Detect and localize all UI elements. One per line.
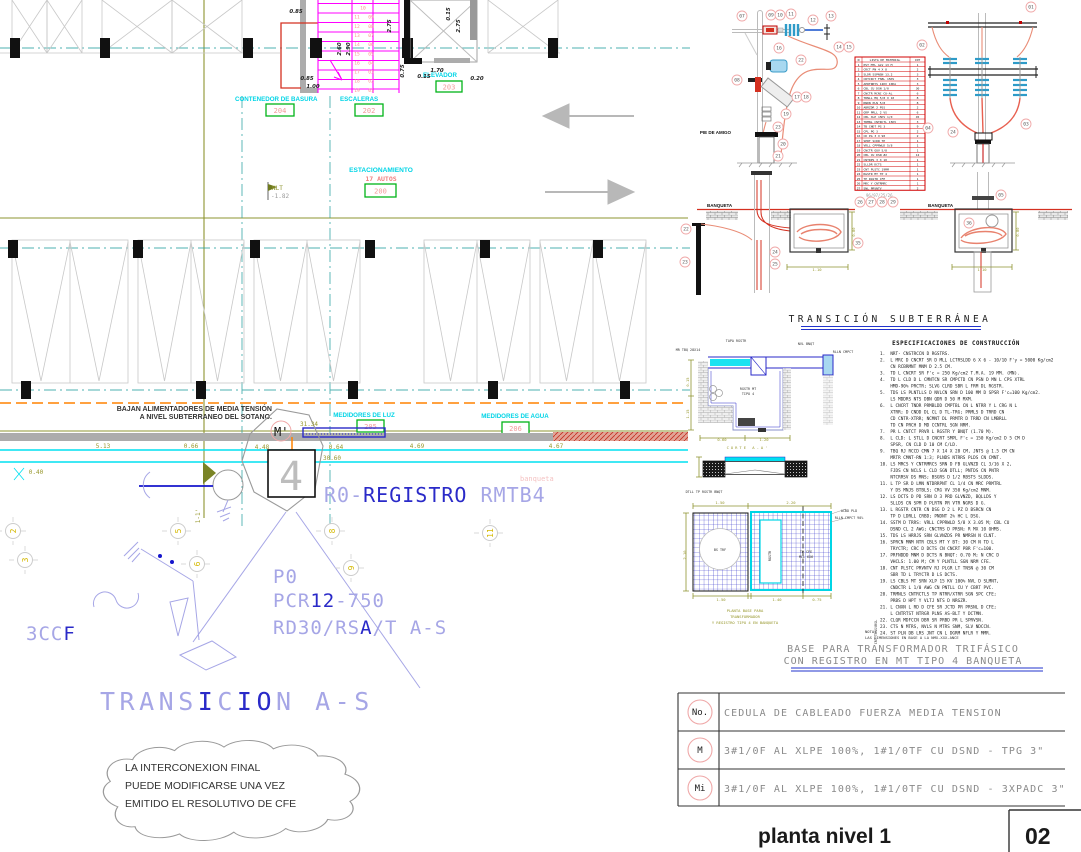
material-row-no: 26 xyxy=(857,182,861,186)
contenedor-label: CONTENEDOR DE BASURA xyxy=(235,96,318,103)
medidores-agua-label: MEDIDORES DE AGUA xyxy=(481,413,549,420)
wall-band-hatched xyxy=(553,432,688,441)
stall-line xyxy=(334,242,361,381)
escaleras-label: ESCALERAS xyxy=(340,96,378,103)
dim-label: 1.00 xyxy=(306,84,320,90)
stair-number: 16 xyxy=(354,60,360,66)
material-row-no: 13 xyxy=(857,120,861,124)
callout-number: 13 xyxy=(828,14,834,20)
material-row-desc: TRNLL MQ 5/8 X 10 xyxy=(864,96,895,100)
bajan-line1: BAJAN ALIMENTADORES DE MEDIA TENSIÓN xyxy=(117,404,272,413)
stall-line xyxy=(70,242,99,381)
callout-number: 04 xyxy=(925,126,931,132)
stall-line xyxy=(138,242,165,381)
riser-conduit-cables xyxy=(757,180,790,290)
callout-number: 35 xyxy=(855,241,861,247)
micro-annotation: 2.10 xyxy=(682,550,687,560)
cable-coil xyxy=(797,225,841,242)
base-caption-1: PLANTA BASE PARA xyxy=(727,608,764,613)
wall xyxy=(404,58,422,64)
callout-number: 22 xyxy=(798,58,804,64)
stair-number: 11 xyxy=(354,15,360,21)
nlt-level: -1.82 xyxy=(271,193,289,200)
table-key-mi: Mi xyxy=(695,784,706,794)
material-row-desc: ABRZDR 2 PSS xyxy=(864,106,886,110)
dim-bracket xyxy=(14,468,24,480)
dim-label: 0.75 xyxy=(400,64,406,78)
spec-line: 2. L MRC D CNCRT SR D MLL LCTRSLDD 6 X 6… xyxy=(880,358,1054,364)
stair-step-numbers: 10110912081307140615051604170318021901 xyxy=(354,6,374,94)
ccf-text: 3CCF xyxy=(26,623,76,645)
spec-line: SPSR, CN CLD D 10 CM C/LD. xyxy=(880,442,958,448)
material-row-no: 24 xyxy=(857,172,861,176)
spec-line: 18. CNT PLSTC PRVNTV RJ PLGR LT TNSN @ 3… xyxy=(880,566,994,572)
callout-number: 02 xyxy=(919,43,925,49)
parking-band-middle xyxy=(8,240,646,399)
dim-label: 4.48 xyxy=(255,444,270,451)
callout-number: 12 xyxy=(810,18,816,24)
material-row-no: 4 xyxy=(858,77,860,81)
material-row-no: 3 xyxy=(858,72,860,76)
column xyxy=(196,381,206,399)
material-row-qty: 1 xyxy=(917,63,919,67)
stair-number: 02 xyxy=(368,79,374,85)
dim-label: 5.13 xyxy=(96,443,111,450)
registro-corte-detail: CORTE A-A' xyxy=(688,355,833,477)
tag-202: 202 xyxy=(363,107,376,115)
material-row-qty: 3 xyxy=(917,77,919,81)
sidewalk-hatch xyxy=(771,211,791,220)
nota-line2: LAS DIMENSIONES EN BASE A LA NMX-XXX-ANC… xyxy=(865,635,959,640)
stall-line xyxy=(477,242,504,381)
spec-line: 11. L TP SR D LMN NTDRRPNT CL 1/4 CN MRC… xyxy=(880,481,1002,487)
spec-line: 8. L CLD: L STLL D CNCRT SMPL F'c = 150 … xyxy=(880,436,1025,442)
stall-line xyxy=(620,242,647,381)
spec-line: L CNTRTST NTRGR PLNS AS-BLT Y DCTMN. xyxy=(880,611,983,617)
stair-number: 18 xyxy=(354,79,360,85)
table-row-mi: 3#1/0F AL XLPE 100%, 1#1/0TF CU DSND - 3… xyxy=(724,784,1066,795)
column xyxy=(10,38,20,58)
callout-number: 17 xyxy=(794,95,800,101)
callout-number: 22 xyxy=(683,227,689,233)
callout-number: 26 xyxy=(857,200,863,206)
stair-number: 03 xyxy=(368,70,374,76)
spec-line: CN RCBRMNT MNM D 2.5 CM. xyxy=(880,364,952,370)
nlt-label: NLT xyxy=(272,185,283,192)
callout-number: 07 xyxy=(739,14,745,20)
material-row-no: 6 xyxy=(858,87,860,91)
mat-header-qty: CNT xyxy=(915,58,921,62)
stair-number: 13 xyxy=(354,33,360,39)
column xyxy=(21,381,31,399)
micro-annotation: TIPO 4 xyxy=(742,392,754,396)
specifications-notes: ESPECIFICACIONES DE CONSTRUCCIÓN 1. NRT-… xyxy=(880,340,1054,637)
spec-line: 15. TDS LS HRRJS SRN GLVNZDS PR NMRSN N … xyxy=(880,533,996,539)
material-row-desc: CBL XLP 15KV 1/0 xyxy=(864,115,893,119)
material-row-qty: 2 xyxy=(917,134,919,138)
spec-line: VHCLS: 1.00 M; CM Y PLNTLL SGN NRM CFE. xyxy=(880,559,991,565)
wall xyxy=(434,58,470,63)
material-row-qty: 6 xyxy=(917,91,919,95)
dim-label: 2.90 xyxy=(346,42,352,56)
material-row-qty: 2 xyxy=(917,186,919,190)
callout-number: 11 xyxy=(788,12,794,18)
material-row-desc: RNDN PLN 5/8 xyxy=(864,101,886,105)
spec-line: NTCRRSV DS MNS; BSGRS D 1/2 RBSTS SLDDS. xyxy=(880,475,994,481)
column xyxy=(365,240,375,258)
callout-number: 08 xyxy=(734,78,740,84)
tag-200: 200 xyxy=(374,188,387,196)
floor-plan: 10110912081307140615051604170318021901 C… xyxy=(0,0,690,841)
material-row-desc: CNCTR GUV 5/8 xyxy=(864,148,888,152)
material-row-qty: 12 xyxy=(916,153,920,157)
material-row-no: 2 xyxy=(858,68,860,72)
material-row-no: 14 xyxy=(857,125,861,129)
material-row-no: 22 xyxy=(857,163,861,167)
cloud-line3: EMITIDO EL RESOLUTIVO DE CFE xyxy=(125,798,296,810)
column xyxy=(348,381,358,399)
wall xyxy=(404,0,410,64)
mat-header-no: N xyxy=(858,58,860,62)
cloud-line2: PUEDE MODIFICARSE UNA VEZ xyxy=(125,780,285,792)
spec-line: 3. TD L CNCRT SR F'c = 250 Kg/cm2 T.M.A.… xyxy=(880,371,1020,377)
table-row-m: 3#1/0F AL XLPE 100%, 1#1/0TF CU DSND - T… xyxy=(724,746,1044,757)
stair-number: 14 xyxy=(354,42,360,48)
micro-annotation: 1.50 xyxy=(716,597,726,602)
marker-m-label: M' xyxy=(274,425,288,439)
tag-203: 203 xyxy=(443,84,456,92)
pcr-text: PCR12-750 xyxy=(273,590,385,612)
pole-base xyxy=(759,137,774,163)
spec-line: 17. PRFNDDD MNM D DCTS N BNQT: 0.70 M; N… xyxy=(880,553,999,559)
stall-line xyxy=(218,242,245,381)
material-row-no: 1 xyxy=(858,63,860,67)
stall-line xyxy=(424,242,451,381)
material-row-no: 5 xyxy=(858,82,860,86)
stair-number: 06 xyxy=(368,42,374,48)
column xyxy=(548,38,558,58)
micro-annotation: 0.80 xyxy=(851,227,856,237)
dim-label: 0.20 xyxy=(470,76,484,82)
callout-number: 10 xyxy=(777,13,783,19)
rd30-text: RD30/RSA/T A-S xyxy=(273,617,447,639)
material-row-desc: CNTRPS 3 X 10 xyxy=(864,158,888,162)
stall-line xyxy=(504,242,531,381)
dim-label: 4.69 xyxy=(410,443,425,450)
material-row-no: 16 xyxy=(857,134,861,138)
material-row-qty: 3 xyxy=(917,120,919,124)
tapa-strip xyxy=(710,359,750,366)
stall-line xyxy=(593,242,620,381)
spec-line: 6. L CNCRT TNDR PRMBLDD CMPTBL CN L NTRR… xyxy=(880,403,1018,409)
dim-label: 4.67 xyxy=(549,443,564,450)
level-marker: NLT -1.82 xyxy=(268,182,289,200)
micro-annotation: RGSTR xyxy=(768,550,772,561)
nota-line1: NOTA: xyxy=(865,629,876,634)
spec-line: SBR TD L TRYCTR D LS DCTS. xyxy=(880,572,958,578)
ground-rod xyxy=(696,226,701,295)
centerlines xyxy=(0,48,690,528)
material-row-desc: CRTCRCT FSBL 15KV xyxy=(864,77,895,81)
material-row-no: 9 xyxy=(858,101,860,105)
feeder-note: BAJAN ALIMENTADORES DE MEDIA TENSIÓN A N… xyxy=(117,404,272,421)
grid-bubble-number: 9 xyxy=(347,565,356,570)
dim-label: 0.85 xyxy=(289,9,303,15)
micro-annotation: MLL 6X6 xyxy=(799,555,813,559)
stall-line xyxy=(165,242,192,381)
title-block: planta nivel 1 02 xyxy=(758,810,1081,852)
arrow-right-icon xyxy=(608,180,634,204)
manhole-circle xyxy=(213,470,243,500)
callout-number: 05 xyxy=(998,193,1004,199)
dim-label: 0.15 xyxy=(417,74,431,80)
stall-line xyxy=(12,242,41,381)
dim-label: 30.60 xyxy=(323,455,341,462)
cable-schedule-table: No. M Mi CEDULA DE CABLEADO FUERZA MEDIA… xyxy=(678,693,1066,806)
dim-label: 0.15 xyxy=(446,7,452,21)
material-row-no: 27 xyxy=(857,186,861,190)
material-row-qty: 1 xyxy=(917,167,919,171)
spec-line: 12. LS DCTS D PD SRN D 3 PRD GLVNZD, BQL… xyxy=(880,494,997,500)
material-row-desc: CPL PG 3 xyxy=(864,129,879,133)
micro-annotation: 1.15 xyxy=(685,409,690,418)
material-row-no: 15 xyxy=(857,129,861,133)
material-row-qty: 1 xyxy=(917,177,919,181)
spec-line: CNDCTR L 1/0 AWG CN PNTLL CU Y CBRT PVC. xyxy=(880,585,994,591)
material-row-no: 12 xyxy=(857,115,861,119)
material-row-qty: 2 xyxy=(917,129,919,133)
fuse-tube xyxy=(755,77,761,92)
transformer-registry: 4 1-1' xyxy=(139,409,323,523)
spec-line: 19. LS CBLS MT SRN XLP 15 KV 100% NVL D … xyxy=(880,579,999,585)
callout-number: 09 xyxy=(768,13,774,19)
sheet-number: 02 xyxy=(1025,823,1051,849)
stall-line xyxy=(254,242,281,381)
material-row-qty: 1 xyxy=(917,139,919,143)
material-row-desc: SLLDR DCTS xyxy=(864,163,882,167)
cad-sheet: 10110912081307140615051604170318021901 C… xyxy=(0,0,1081,852)
stair-number: 04 xyxy=(368,60,374,66)
spec-line: Y DS MNJS BTBLS; CRG VV 350 Kg/cm2 MNM. xyxy=(880,488,991,494)
callout-number: 20 xyxy=(780,142,786,148)
material-row-desc: SNL PRVNTV xyxy=(864,186,882,190)
material-row-no: 17 xyxy=(857,139,861,143)
callout-number: 27 xyxy=(868,200,874,206)
callout-number: 25 xyxy=(772,262,778,268)
material-row-no: 19 xyxy=(857,148,861,152)
material-row-desc: GRP PRLL 2 VS xyxy=(864,110,888,114)
sidewalk-hatch xyxy=(706,211,738,220)
material-row-desc: CBL CU DSN #2 xyxy=(864,153,888,157)
table-row-header: CEDULA DE CABLEADO FUERZA MEDIA TENSION xyxy=(724,708,1002,719)
grid-bubble-number: 8 xyxy=(328,528,337,533)
callout-number: 16 xyxy=(776,46,782,52)
spec-line: 9. TBQ RJ RCCD CMN 7 X 14 X 28 CM, JNTS … xyxy=(880,449,1015,455)
material-row-qty: 1 xyxy=(917,148,919,152)
material-row-desc: MRC Y CNTRMRC xyxy=(864,182,888,186)
tapa-detail-strip xyxy=(725,457,785,462)
callout-number: 23 xyxy=(775,125,781,131)
transicion-subterranea-title: TRANSICIÓN SUBTERRÁNEA xyxy=(789,313,992,325)
callout-number: 01 xyxy=(1028,5,1034,11)
detail-drawings: PIE DE AMIGO N LISTA DE MATERIAL CNT 1PS… xyxy=(676,2,1072,671)
p0-text: P0 xyxy=(273,566,298,588)
dim-label: 0.40 xyxy=(29,469,44,476)
room-labels: CONTENEDOR DE BASURA 204 ESCALERAS 202 E… xyxy=(235,72,549,434)
medidores-luz-label: MEDIDORES DE LUZ xyxy=(333,412,395,419)
spec-line: CD CNTR-XTRR; NCMNT DL PRMTR D TRRD CN L… xyxy=(880,416,1007,422)
transicion-title: TRANSICION A-S xyxy=(100,687,374,716)
dim-label: 2.75 xyxy=(456,19,462,33)
revision-cloud: LA INTERCONEXION FINAL PUEDE MODIFICARSE… xyxy=(103,740,359,840)
micro-annotation: 1.40 xyxy=(772,597,782,602)
grid-bubble-number: 5 xyxy=(174,528,183,533)
stall-line xyxy=(451,242,478,381)
micro-annotation: 1.20 xyxy=(759,437,769,442)
grid-bubble-number: 2 xyxy=(9,528,18,533)
grid-bubbles: 23568911 xyxy=(0,517,506,582)
callout-number: 19 xyxy=(783,112,789,118)
grid-bubble-number: 6 xyxy=(193,561,202,566)
column xyxy=(593,240,603,258)
material-row-desc: CNCTR MCNC CU-AL xyxy=(864,91,893,95)
micro-annotation: NVL BNQT xyxy=(798,342,814,346)
spec-line: 1. NRT- CNSTRCCN D RGSTRS. xyxy=(880,351,950,357)
material-row-desc: TP RGSTR CFE xyxy=(864,177,886,181)
spec-line: 13. L RGSTR CNTR CN DSG D 2 L PZ D BSRCN… xyxy=(880,507,992,513)
pole-front-view xyxy=(928,13,1038,167)
material-row-desc: TRMNL CNTRCTL 15KV xyxy=(864,120,897,124)
stair-number: 15 xyxy=(354,51,360,57)
micro-annotation: RGSTR MT xyxy=(740,387,756,391)
material-row-qty: 1 xyxy=(917,172,919,176)
wall xyxy=(470,0,477,40)
micro-annotation: 1.50 xyxy=(715,500,725,505)
fuse-cartridge xyxy=(761,78,794,107)
column xyxy=(100,38,110,58)
material-row-desc: APRTRRYS 12KV 10KA xyxy=(864,82,897,86)
section-mark: 1-1' xyxy=(195,509,202,523)
material-row-no: 11 xyxy=(857,110,861,114)
material-table: N LISTA DE MATERIAL CNT 1PST MTL GLV 13 … xyxy=(855,57,925,190)
spec-line: 7. PR L CNTCT PRVR L RGSTR Y BNQT (1.70 … xyxy=(880,429,994,435)
stall-line xyxy=(567,242,594,381)
tag-205: 205 xyxy=(364,423,377,431)
grid-bubble-number: 11 xyxy=(486,528,495,538)
banqueta-label-2: BANQUETA xyxy=(928,203,954,208)
callout-number: 23 xyxy=(682,260,688,266)
material-row-qty: 2 xyxy=(917,68,919,72)
spec-line: FJDS CN NCLS L CLD SGN DTLL; PNTDS CN PN… xyxy=(880,468,999,474)
spec-line: 4. TD L CLD D L CMNTCN SR CMPCTD CN PSN … xyxy=(880,377,1025,383)
base-caption-2: TRANSFORMADOR xyxy=(730,614,760,619)
banqueta-faint: banqueta xyxy=(520,475,554,483)
stair-number: 10 xyxy=(360,6,366,12)
material-row-qty: 3 xyxy=(917,82,919,86)
spec-line: 23. CTS N MTRS, NVLS N MTRS SNM, SLV NDC… xyxy=(880,624,991,630)
elevator-block xyxy=(404,0,477,64)
micro-annotation: 1.10 xyxy=(977,267,987,272)
column xyxy=(133,240,143,258)
spec-line: 5. TDS LS PLNTLLS D NVLCN SRN D 100 MM D… xyxy=(880,390,1040,396)
dim-label: 0.66 xyxy=(184,443,199,450)
micro-annotation: 0.75 xyxy=(812,597,821,602)
spec-line: TD CN PRCH D MD CCNTRL SGN NRM. xyxy=(880,423,971,429)
stall-line xyxy=(307,242,334,381)
bajan-line2: A NIVEL SUBTERRANEO DEL SOTANO. xyxy=(140,414,272,421)
micro-annotation: ACBD PLD xyxy=(841,509,857,513)
tag-204: 204 xyxy=(274,107,287,115)
material-row-qty: 8 xyxy=(917,96,919,100)
callout-number: 36 xyxy=(966,221,972,227)
cloud-line1: LA INTERCONEXION FINAL xyxy=(125,762,261,774)
material-row-desc: CRCT PN 4 X 8 xyxy=(864,68,888,72)
micro-annotation: 2.20 xyxy=(786,500,796,505)
corte-caption: CORTE A-A' xyxy=(727,445,770,450)
spec-line: PRBS D HPT Y VLTJ NTS D NRGZR. xyxy=(880,598,968,604)
stair-number: 09 xyxy=(368,15,374,21)
material-row-desc: PST MTL GLV 13 M xyxy=(864,63,893,67)
arrester xyxy=(770,60,787,72)
material-row-qty: 9 xyxy=(917,125,919,129)
material-row-desc: SPRT SCDR TP xyxy=(864,139,886,143)
spec-line: XTRR; D CNDD DL CL D TL-TRG; PRMLS D TRR… xyxy=(880,410,1005,416)
spec-line: 16. SPRCN MNM NTR CBLS MT Y BT: 30 CM N … xyxy=(880,540,994,546)
stall-line xyxy=(41,242,70,381)
callout-number: 24 xyxy=(950,130,956,136)
micro-annotation: BS TRF xyxy=(714,548,726,552)
spec-line: MRTR CMNT-RN 1:3; PLNDS NTRRS PLDS CN CM… xyxy=(880,455,1002,461)
material-row-desc: SLDR SSPNSN 13.2 xyxy=(864,72,893,76)
column xyxy=(480,240,490,258)
spec-line: TRYCTR; CRC D DCTS CN CNCRT PBR F'c=100. xyxy=(880,546,994,552)
column xyxy=(250,240,260,258)
material-row-qty: 1 xyxy=(917,182,919,186)
callout-number: 24 xyxy=(772,250,778,256)
stair-number: 08 xyxy=(368,24,374,30)
column xyxy=(620,381,630,399)
material-row-no: 8 xyxy=(858,96,860,100)
registro-text: R0-REGISTRO RMTB4 xyxy=(324,483,546,507)
material-row-qty: 6 xyxy=(917,110,919,114)
material-row-qty: 30 xyxy=(916,87,920,91)
drop-cables xyxy=(932,27,1033,57)
spec-line: 22. CLQR MDFCCN DBR SR PRBD PR L SPRVSN. xyxy=(880,618,983,624)
dim-label: 1.70 xyxy=(430,68,444,74)
material-row-no: 25 xyxy=(857,177,861,181)
stall-line xyxy=(540,242,567,381)
table-key-m: M xyxy=(697,746,703,756)
mat-header-desc: LISTA DE MATERIAL xyxy=(870,58,901,62)
arrow-left-icon xyxy=(543,104,569,128)
stair-number: 05 xyxy=(368,51,374,57)
stair-number: 19 xyxy=(354,88,360,94)
callout-number: 28 xyxy=(879,200,885,206)
transformer-base-plan: PLANTA BASE PARA TRANSFORMADOR Y REGISTR… xyxy=(683,503,846,625)
stair-number: 17 xyxy=(354,70,360,76)
column xyxy=(243,38,253,58)
callout-number: 18 xyxy=(803,95,809,101)
micro-annotation: TP CFE xyxy=(800,550,812,554)
material-row-no: 21 xyxy=(857,158,861,162)
callout-number: 15 xyxy=(846,45,852,51)
stair-number: 07 xyxy=(368,33,374,39)
material-row-qty: 1 xyxy=(917,163,919,167)
specs-body: 1. NRT- CNSTRCCN D RGSTRS.2. L MRC D CNC… xyxy=(880,351,1054,637)
micro-annotation: 0.60 xyxy=(717,437,727,442)
spec-line: HMD-90% PRCTR; SLVG CLRD SBR L FRM DL RG… xyxy=(880,384,1004,390)
spec-line: LS MDDRS NTS DBN QDR D 50 M MXM. xyxy=(880,397,973,403)
